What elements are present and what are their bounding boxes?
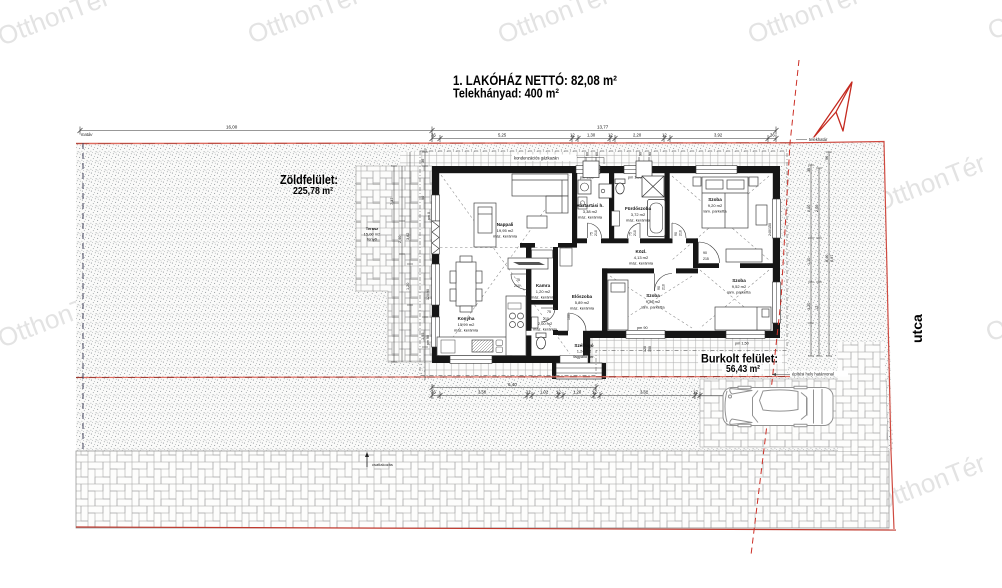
- svg-text:Előszoba: Előszoba: [572, 294, 593, 299]
- svg-text:Telekhányad: 400 m²: Telekhányad: 400 m²: [453, 86, 560, 101]
- svg-text:75: 75: [516, 278, 520, 282]
- svg-text:225,78 m²: 225,78 m²: [293, 186, 334, 197]
- svg-text:12: 12: [815, 306, 819, 310]
- svg-text:90: 90: [703, 251, 707, 255]
- svg-text:1,20: 1,20: [573, 390, 582, 395]
- svg-text:2,00 m2: 2,00 m2: [538, 321, 553, 326]
- svg-text:telekhatár: telekhatár: [809, 137, 828, 142]
- svg-text:fagyálló ker.: fagyálló ker.: [573, 354, 594, 359]
- svg-text:pm 0: pm 0: [427, 212, 431, 220]
- svg-text:56,43 m²: 56,43 m²: [726, 364, 761, 375]
- svg-text:75: 75: [547, 310, 551, 314]
- svg-text:3,38 m2: 3,38 m2: [583, 209, 598, 214]
- svg-text:3,20: 3,20: [807, 303, 811, 310]
- svg-text:9,20 m2: 9,20 m2: [708, 203, 723, 208]
- svg-text:máz. kerámia: máz. kerámia: [533, 327, 558, 332]
- svg-text:máz. kerámia: máz. kerámia: [629, 261, 654, 266]
- svg-text:90: 90: [421, 196, 425, 200]
- svg-text:Zöldfelület:: Zöldfelület:: [280, 173, 338, 187]
- svg-text:pm 90: pm 90: [637, 326, 648, 330]
- svg-text:9,52 m2: 9,52 m2: [732, 284, 747, 289]
- svg-text:3,50: 3,50: [478, 390, 487, 395]
- svg-text:2,40: 2,40: [398, 236, 402, 243]
- svg-text:Konyha: Konyha: [458, 316, 475, 321]
- svg-text:210: 210: [633, 230, 637, 236]
- svg-text:90: 90: [674, 232, 678, 236]
- svg-text:75: 75: [629, 232, 633, 236]
- svg-text:210: 210: [543, 317, 549, 321]
- svg-text:90: 90: [825, 156, 829, 160]
- svg-text:Fürdőszoba: Fürdőszoba: [625, 206, 651, 211]
- svg-text:36: 36: [431, 390, 436, 395]
- svg-text:lam. parketta: lam. parketta: [641, 305, 665, 310]
- svg-text:90: 90: [639, 152, 643, 156]
- svg-text:lam. parketta: lam. parketta: [727, 290, 751, 295]
- svg-text:1,30: 1,30: [587, 133, 596, 138]
- svg-text:100: 100: [567, 314, 571, 320]
- svg-text:máz. kerámia: máz. kerámia: [531, 295, 556, 300]
- svg-text:utca: utca: [909, 314, 925, 343]
- svg-text:pm 90: pm 90: [426, 335, 430, 345]
- svg-text:90: 90: [648, 152, 652, 156]
- svg-text:12: 12: [662, 133, 667, 138]
- svg-text:Nappali: Nappali: [497, 222, 514, 227]
- svg-text:60: 60: [595, 152, 599, 156]
- svg-text:9,36 m2: 9,36 m2: [646, 299, 661, 304]
- svg-text:5,89 m2: 5,89 m2: [575, 300, 590, 305]
- svg-text:6,07: 6,07: [830, 255, 834, 262]
- svg-text:12: 12: [556, 390, 561, 395]
- svg-text:2,20: 2,20: [633, 133, 642, 138]
- svg-text:1,95: 1,95: [421, 333, 425, 340]
- svg-text:12: 12: [570, 133, 575, 138]
- svg-text:3,72 m2: 3,72 m2: [631, 212, 646, 217]
- svg-text:12: 12: [693, 390, 698, 395]
- svg-text:máz. kerámia: máz. kerámia: [570, 306, 595, 311]
- svg-text:210: 210: [679, 230, 683, 236]
- svg-text:210: 210: [594, 230, 598, 236]
- svg-text:120/90: 120/90: [426, 289, 430, 300]
- svg-text:1,24 m2: 1,24 m2: [577, 349, 592, 354]
- svg-text:2,00: 2,00: [807, 205, 811, 212]
- svg-text:fenyő: fenyő: [367, 237, 378, 242]
- svg-text:4,13 m2: 4,13 m2: [634, 255, 649, 260]
- svg-text:240/150: 240/150: [768, 223, 772, 236]
- svg-text:Kamra: Kamra: [536, 283, 551, 288]
- svg-text:Szoba: Szoba: [732, 278, 746, 283]
- svg-text:1,20: 1,20: [406, 283, 410, 290]
- svg-text:90: 90: [657, 286, 661, 290]
- svg-text:pm 1,50: pm 1,50: [735, 342, 749, 346]
- svg-text:36: 36: [807, 168, 811, 172]
- svg-text:12: 12: [526, 390, 531, 395]
- svg-text:6,40: 6,40: [508, 382, 517, 387]
- svg-text:12: 12: [608, 133, 613, 138]
- svg-text:Szoba: Szoba: [646, 293, 660, 298]
- svg-text:Terasz: Terasz: [366, 226, 378, 231]
- svg-text:3,82: 3,82: [406, 233, 410, 240]
- svg-text:215: 215: [703, 257, 709, 261]
- svg-text:Szélfogó: Szélfogó: [574, 343, 593, 348]
- svg-text:2,00: 2,00: [815, 205, 819, 212]
- svg-text:13,77: 13,77: [597, 125, 609, 130]
- svg-text:60: 60: [586, 152, 590, 156]
- svg-text:1,02: 1,02: [540, 390, 549, 395]
- svg-text:máz. kerámia: máz. kerámia: [626, 218, 651, 223]
- svg-text:lam. parketta: lam. parketta: [703, 209, 727, 214]
- svg-text:8,40: 8,40: [825, 255, 829, 262]
- svg-text:matáv: matáv: [81, 132, 93, 137]
- svg-text:19,95 m2: 19,95 m2: [497, 228, 514, 233]
- svg-text:Közl.: Közl.: [636, 249, 647, 254]
- svg-text:150: 150: [648, 346, 652, 352]
- svg-text:36: 36: [431, 133, 436, 138]
- svg-text:máz. kerámia: máz. kerámia: [454, 328, 479, 333]
- svg-text:75: 75: [590, 232, 594, 236]
- svg-text:Háztartási h.: Háztartási h.: [576, 203, 603, 208]
- svg-text:210: 210: [662, 284, 666, 290]
- svg-text:3,92: 3,92: [714, 133, 723, 138]
- svg-text:12: 12: [592, 390, 597, 395]
- svg-text:3,62: 3,62: [640, 390, 649, 395]
- svg-text:5,25: 5,25: [498, 133, 507, 138]
- svg-text:építési hely határvonal: építési hely határvonal: [792, 372, 834, 377]
- svg-text:120: 120: [643, 346, 647, 352]
- svg-text:210: 210: [514, 284, 520, 288]
- svg-text:Szoba: Szoba: [708, 197, 722, 202]
- svg-text:16,00: 16,00: [226, 125, 238, 130]
- svg-text:csatlakozás: csatlakozás: [372, 462, 393, 467]
- svg-text:7,37: 7,37: [390, 198, 394, 205]
- svg-text:15,99 m2: 15,99 m2: [458, 322, 475, 327]
- svg-text:1,20 m2: 1,20 m2: [536, 289, 551, 294]
- svg-text:36: 36: [770, 133, 775, 138]
- svg-text:36: 36: [421, 159, 425, 163]
- svg-text:1,10: 1,10: [807, 258, 811, 265]
- svg-text:máz. kerámia: máz. kerámia: [578, 215, 603, 220]
- svg-text:máz. kerámia: máz. kerámia: [493, 234, 518, 239]
- svg-text:kondenzációs gázkazán: kondenzációs gázkazán: [514, 156, 559, 161]
